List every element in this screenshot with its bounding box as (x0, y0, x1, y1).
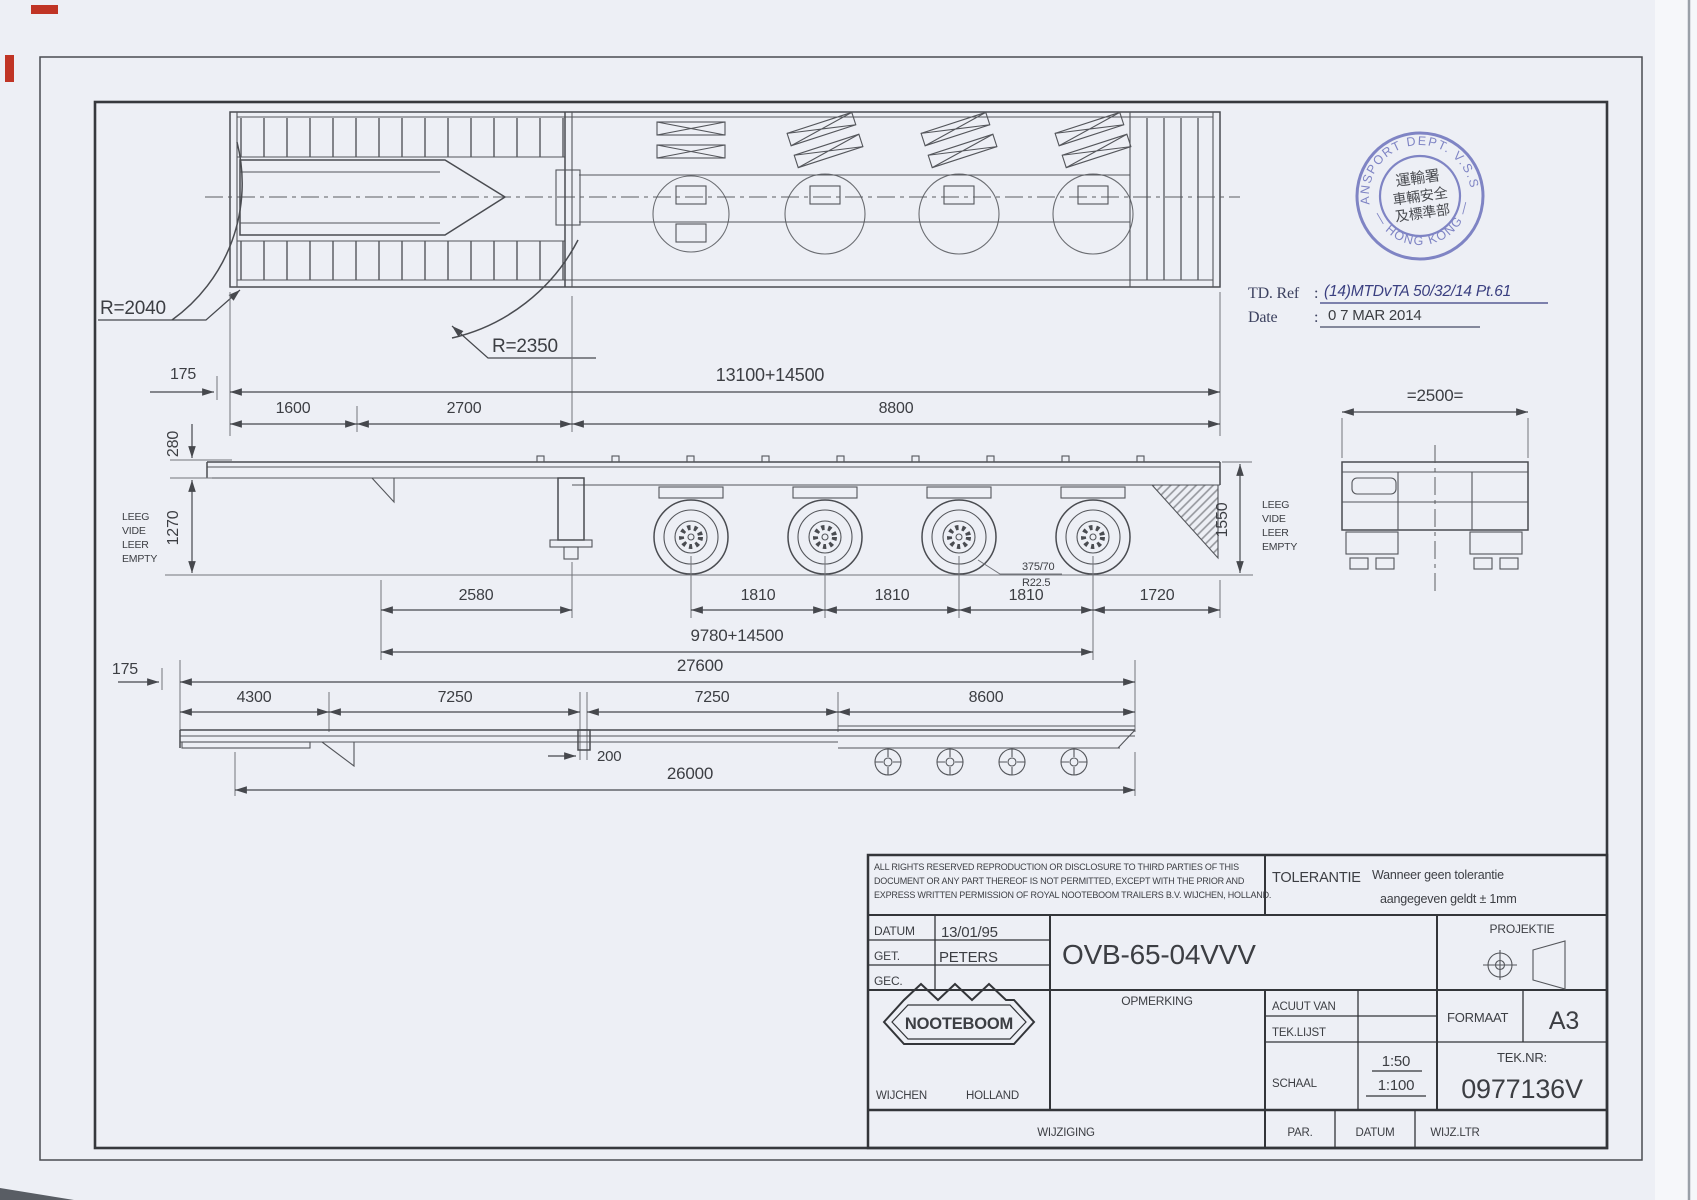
date-label: Date (1248, 309, 1278, 326)
red-corner-mark-left (5, 55, 14, 82)
wijziging-label: WIJZIGING (1037, 1127, 1095, 1139)
datum-value: 13/01/95 (941, 924, 998, 941)
dim-8800-label: 8800 (879, 400, 914, 417)
extended-view: 200 26000 (180, 726, 1135, 796)
dim-8600-label: 8600 (969, 689, 1004, 706)
scan-edge (1655, 0, 1697, 1200)
title-block: ALL RIGHTS RESERVED REPRODUCTION OR DISC… (868, 855, 1607, 1148)
radius-r2350: R=2350 (452, 326, 596, 358)
empty-note-line2: VIDE (122, 525, 146, 537)
bogie-2 (787, 112, 863, 167)
td-ref-block: TD. Ref : (14)MTDvTA 50/32/14 Pt.61 Date… (1248, 283, 1548, 327)
rear-wheel-left (1346, 532, 1398, 554)
empty-note-r2: VIDE (1262, 513, 1286, 525)
nooteboom-logo: NOOTEBOOM (884, 984, 1034, 1044)
get-label: GET. (874, 949, 900, 963)
teknr-label: TEK.NR: (1497, 1050, 1547, 1065)
schaal-label: SCHAAL (1272, 1078, 1318, 1090)
logo-country: HOLLAND (966, 1090, 1019, 1102)
dim-overall-label: 13100+14500 (716, 365, 825, 385)
tire-size-line1: 375/70 (1022, 561, 1055, 573)
empty-note-r3: LEER (1262, 527, 1289, 539)
dim-200-label: 200 (597, 748, 621, 765)
dim-1270-label: 1270 (165, 510, 182, 545)
plan-view (172, 112, 1240, 338)
dim-1810-label-2: 1810 (875, 587, 910, 604)
td-ref-colon: : (1314, 285, 1318, 302)
dim-1720-label: 1720 (1140, 587, 1175, 604)
dims-top: 175 13100+14500 1600 2700 8800 (150, 292, 1220, 436)
stamp-arc-top: TRANSPORT DEPT. V.S.S.D. (0, 0, 1482, 396)
schaal-value-1: 1:50 (1382, 1053, 1410, 1070)
datum2-label: DATUM (1355, 1127, 1394, 1139)
dim-label: R=2350 (492, 336, 558, 357)
dims-right-height: 1550 LEEG VIDE LEER EMPTY (1214, 462, 1297, 573)
bogie-3 (921, 112, 997, 167)
gec-label: GEC. (874, 974, 903, 988)
tolerantie-line2: aangegeven geldt ± 1mm (1380, 892, 1517, 906)
td-ref-value: (14)MTDvTA 50/32/14 Pt.61 (1324, 283, 1511, 300)
rear-wheel-right (1470, 532, 1522, 554)
dim-280-label: 280 (165, 431, 182, 457)
empty-note-line1: LEEG (122, 511, 149, 523)
acuut-van-label: ACUUT VAN (1272, 1001, 1336, 1013)
dim-175-label: 175 (170, 366, 196, 383)
empty-note-r1: LEEG (1262, 499, 1289, 511)
tolerantie-line1: Wanneer geen tolerantie (1372, 868, 1504, 882)
wijzltr-label: WIJZ.LTR (1430, 1127, 1479, 1139)
date-colon: : (1314, 309, 1318, 326)
schaal-value-2: 1:100 (1378, 1077, 1415, 1094)
tolerantie-label: TOLERANTIE (1272, 870, 1361, 886)
landing-leg (322, 742, 354, 766)
datum-label: DATUM (874, 924, 915, 938)
ext-wheel-4 (1061, 749, 1087, 775)
copyright-line2: DOCUMENT OR ANY PART THEREOF IS NOT PERM… (874, 876, 1245, 886)
td-ref-label: TD. Ref (1248, 285, 1300, 302)
teklijst-label: TEK.LIJST (1272, 1027, 1326, 1039)
dim-1810-label-3: 1810 (1009, 587, 1044, 604)
dim-1550-label: 1550 (1214, 502, 1231, 537)
tire-size-line2: R22.5 (1022, 577, 1050, 589)
projection-symbol-icon (1483, 941, 1565, 989)
dims-extended: 175 27600 4300 7250 7250 8600 (112, 656, 1135, 760)
dim-1810-label-1: 1810 (741, 587, 776, 604)
bogie-4 (1055, 112, 1131, 167)
copyright-line1: ALL RIGHTS RESERVED REPRODUCTION OR DISC… (874, 862, 1239, 872)
projektie-label: PROJEKTIE (1490, 922, 1555, 936)
dim-27600-label: 27600 (677, 656, 723, 675)
logo-city: WIJCHEN (876, 1090, 927, 1102)
ext-wheel-1 (875, 749, 901, 775)
bogie-1 (657, 122, 725, 158)
dim-4300-label: 4300 (237, 689, 272, 706)
ext-wheel-3 (999, 749, 1025, 775)
dim-2580-label: 2580 (459, 587, 494, 604)
radius-r2040: R=2040 (98, 290, 240, 320)
dim-1600-label: 1600 (276, 400, 311, 417)
par-label: PAR. (1287, 1127, 1312, 1139)
dim-7250-label-2: 7250 (695, 689, 730, 706)
get-value: PETERS (939, 949, 998, 966)
dim-wheelbase-label: 9780+14500 (690, 626, 783, 645)
scanned-technical-drawing: R=2040 R=2350 175 13100+14500 1600 2700 … (0, 0, 1697, 1200)
dim-26000-label: 26000 (667, 764, 713, 783)
side-view (165, 456, 1253, 575)
scan-shadow-corner (0, 1188, 74, 1200)
empty-note-line4: EMPTY (122, 553, 157, 565)
dim-label: R=2040 (100, 298, 166, 319)
formaat-label: FORMAAT (1447, 1010, 1508, 1025)
formaat-value: A3 (1549, 1007, 1579, 1035)
ext-wheel-2 (937, 749, 963, 775)
rear-view: =2500= (1342, 386, 1528, 592)
teknr-value: 0977136V (1461, 1074, 1583, 1104)
dims-axles: 2580 1810 1810 1810 1720 375/70 R22.5 97… (381, 556, 1220, 660)
copyright-line3: EXPRESS WRITTEN PERMISSION OF ROYAL NOOT… (874, 890, 1271, 900)
approval-stamp: TRANSPORT DEPT. V.S.S.D. — HONG KONG — 運… (0, 0, 1491, 457)
date-stamp-value: 0 7 MAR 2014 (1328, 307, 1422, 324)
rear-toolbox (1352, 478, 1396, 494)
dim-175b-label: 175 (112, 661, 138, 678)
dim-2700-label: 2700 (447, 400, 482, 417)
empty-note-line3: LEER (122, 539, 149, 551)
dims-left-heights: 280 1270 LEEG VIDE LEER EMPTY (122, 424, 232, 573)
logo-text: NOOTEBOOM (905, 1015, 1013, 1033)
empty-note-r4: EMPTY (1262, 541, 1297, 553)
dim-7250-label-1: 7250 (438, 689, 473, 706)
dim-2500-label: =2500= (1407, 386, 1464, 405)
opmerking-label: OPMERKING (1121, 994, 1193, 1008)
red-corner-mark-top (31, 5, 58, 14)
drawing-number: OVB-65-04VVV (1062, 939, 1256, 970)
